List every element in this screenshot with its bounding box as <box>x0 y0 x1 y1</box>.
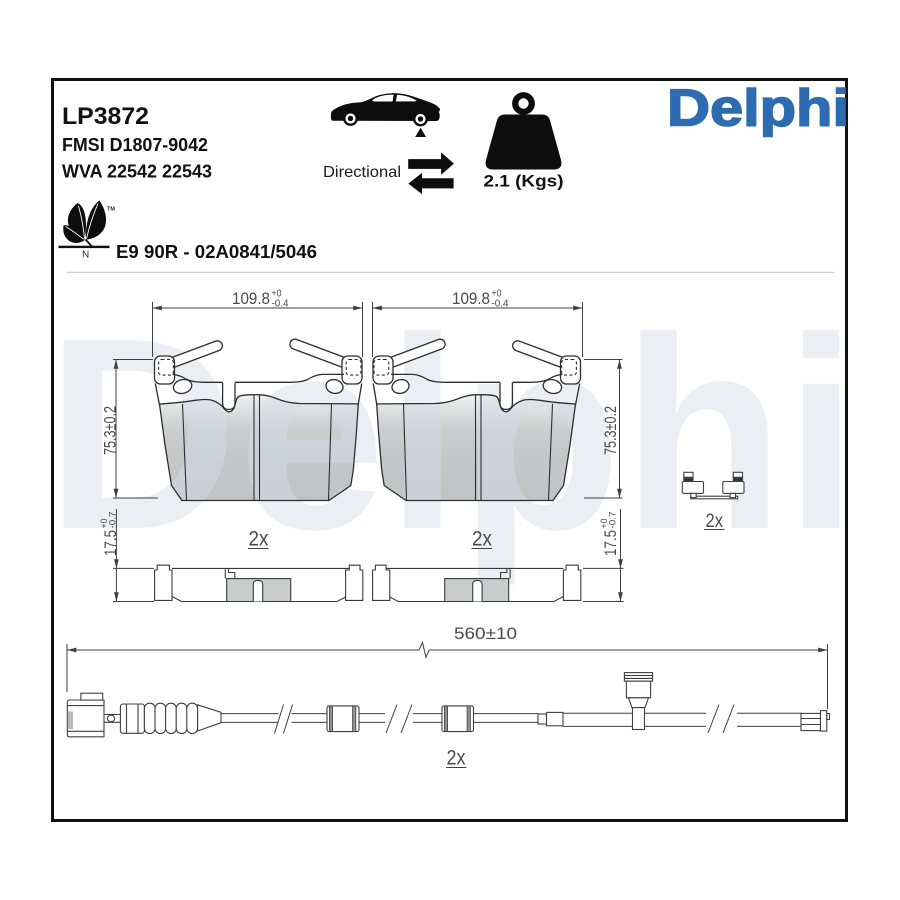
svg-text:109.8: 109.8 <box>232 289 270 308</box>
svg-text:N: N <box>82 250 89 261</box>
svg-text:2x: 2x <box>447 747 466 770</box>
svg-text:2x: 2x <box>706 511 724 532</box>
svg-text:FMSI D1807-9042: FMSI D1807-9042 <box>62 135 208 155</box>
svg-text:TM: TM <box>107 207 115 213</box>
svg-text:-0.4: -0.4 <box>492 299 509 310</box>
svg-text:-0.4: -0.4 <box>272 299 289 310</box>
svg-text:109.8: 109.8 <box>452 289 490 308</box>
svg-text:560±10: 560±10 <box>454 624 517 643</box>
svg-text:75.3±0.2: 75.3±0.2 <box>102 406 120 455</box>
svg-text:E9 90R - 02A0841/5046: E9 90R - 02A0841/5046 <box>116 242 317 262</box>
svg-text:75.3±0.2: 75.3±0.2 <box>602 406 620 455</box>
svg-text:2x: 2x <box>472 528 492 551</box>
svg-text:Delphi: Delphi <box>667 80 849 138</box>
svg-text:Delphi: Delphi <box>46 281 858 588</box>
svg-text:Directional: Directional <box>323 164 401 181</box>
svg-text:17.5: 17.5 <box>602 530 620 556</box>
svg-text:-0.7: -0.7 <box>608 512 619 529</box>
svg-text:17.5: 17.5 <box>102 530 120 556</box>
svg-text:LP3872: LP3872 <box>62 103 149 130</box>
svg-text:2.1 (Kgs): 2.1 (Kgs) <box>484 172 564 191</box>
svg-text:WVA 22542 22543: WVA 22542 22543 <box>62 162 212 182</box>
svg-text:2x: 2x <box>249 528 269 551</box>
